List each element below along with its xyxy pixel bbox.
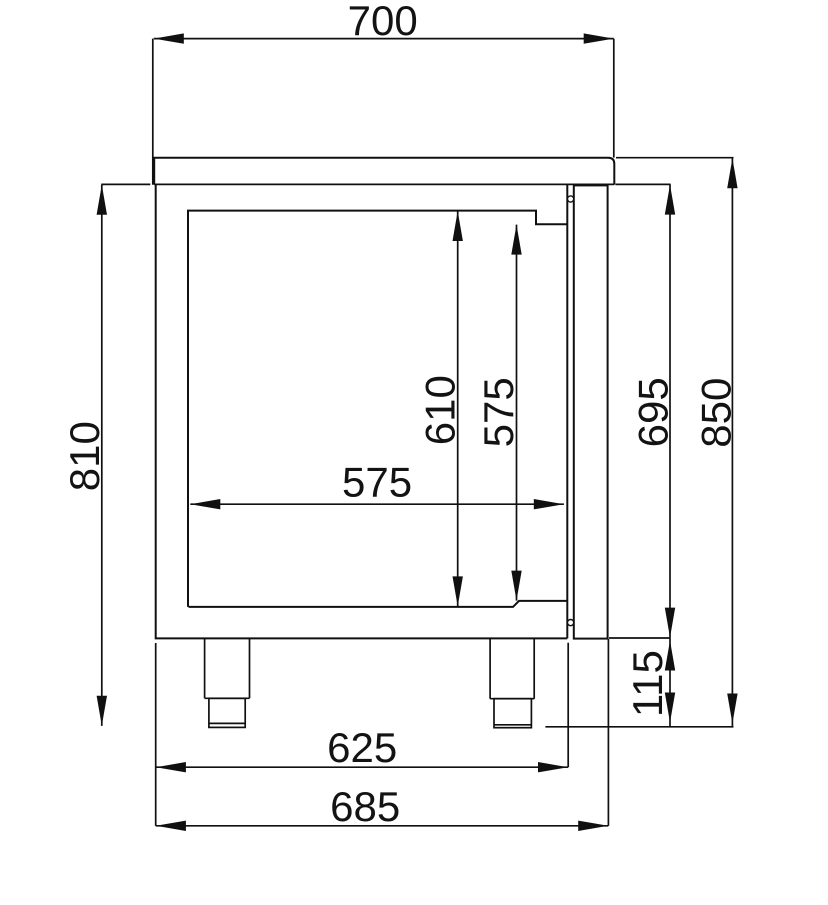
svg-text:575: 575 [475, 377, 522, 447]
svg-text:810: 810 [61, 421, 108, 491]
svg-text:850: 850 [692, 378, 739, 448]
svg-text:685: 685 [330, 783, 400, 830]
svg-text:575: 575 [342, 459, 412, 506]
svg-text:695: 695 [630, 377, 677, 447]
svg-text:625: 625 [327, 724, 397, 771]
svg-text:115: 115 [624, 650, 671, 717]
svg-text:610: 610 [417, 375, 464, 445]
svg-text:700: 700 [348, 0, 418, 44]
